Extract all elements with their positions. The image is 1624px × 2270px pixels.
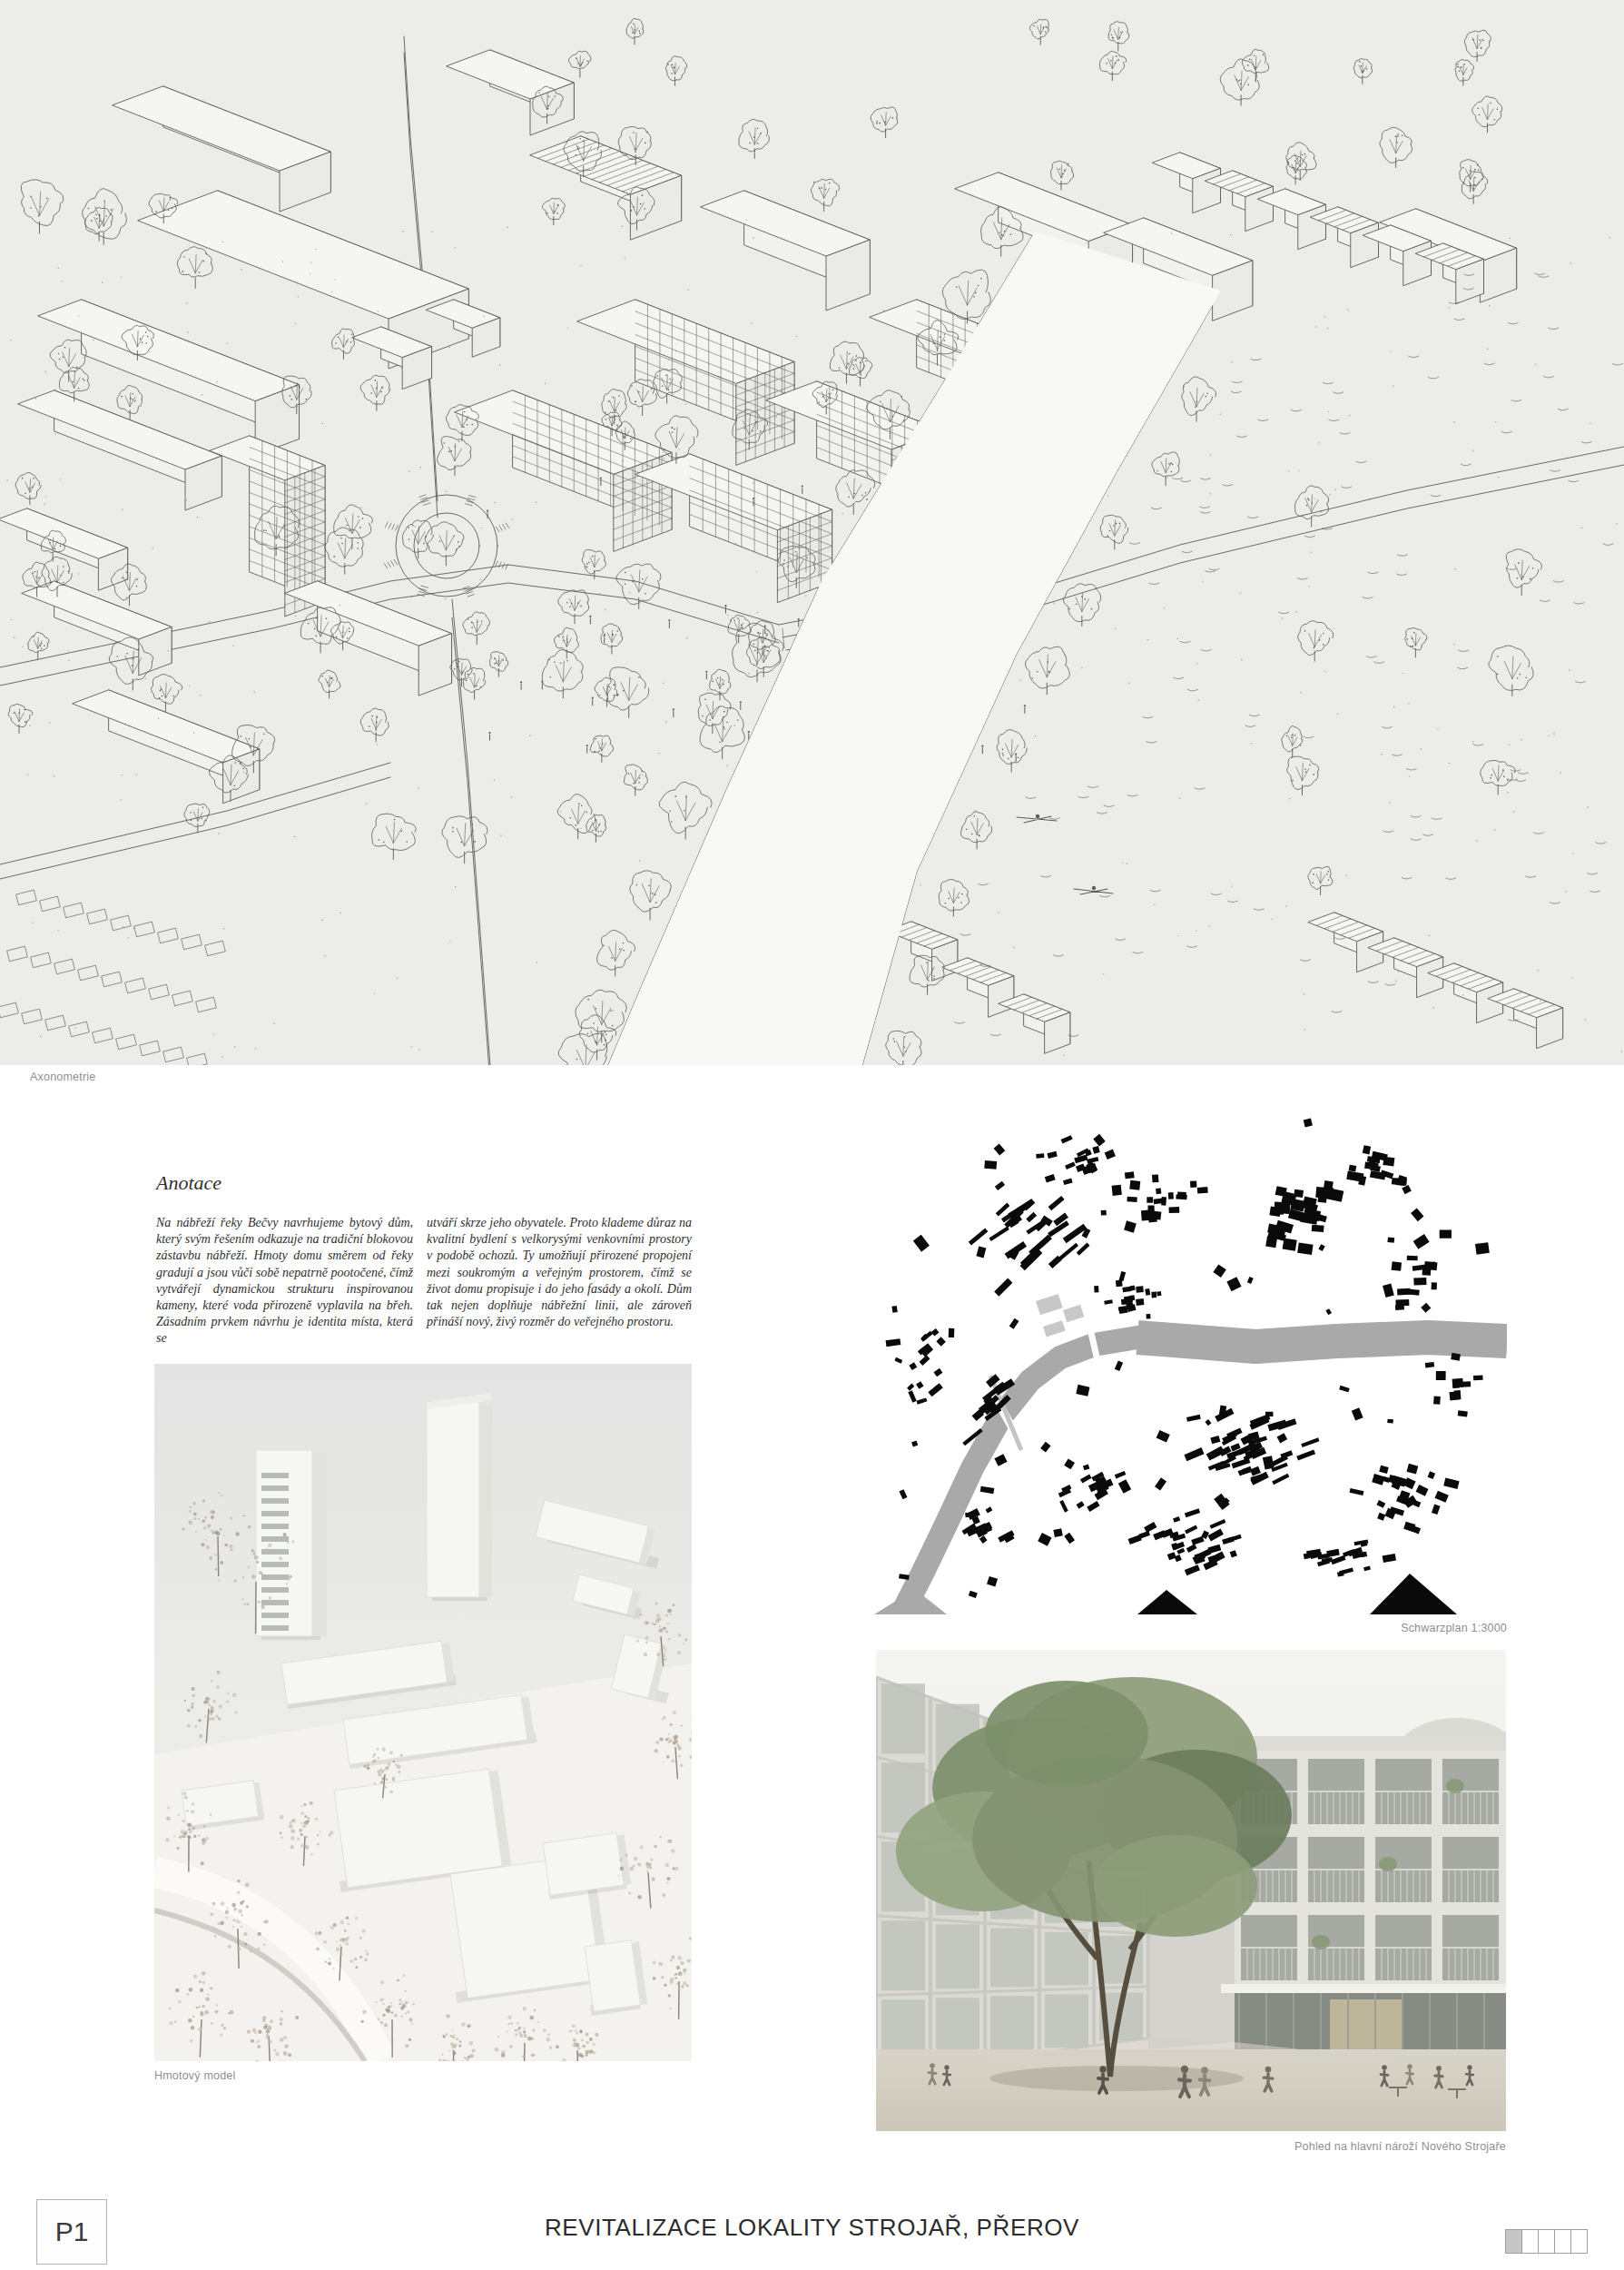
- panel-id-badge: P1: [36, 2199, 107, 2265]
- page-indicator-cell: [1521, 2229, 1539, 2254]
- page-indicator-cell: [1505, 2229, 1522, 2254]
- annotation-column-1: Na nábřeží řeky Bečvy navrhujeme bytový …: [156, 1215, 413, 1347]
- annotation-heading: Anotace: [156, 1171, 221, 1195]
- page-indicator-cell: [1538, 2229, 1555, 2254]
- annotation-column-2: utváří skrze jeho obyvatele. Proto klade…: [427, 1215, 692, 1330]
- axonometric-drawing: [0, 0, 1624, 1065]
- panel-title: REVITALIZACE LOKALITY STROJAŘ, PŘEROV: [545, 2214, 1079, 2242]
- caption-schwarzplan: Schwarzplan 1:3000: [865, 1622, 1507, 1634]
- caption-axonometrie: Axonometrie: [30, 1071, 95, 1083]
- render-photo-svg: [876, 1650, 1506, 2131]
- page-indicator: [1506, 2229, 1588, 2254]
- page-indicator-cell: [1554, 2229, 1571, 2254]
- figure-ground-map: [865, 1103, 1507, 1614]
- render-photo: [876, 1650, 1506, 2131]
- axonometric-drawing-svg: [0, 0, 1624, 1065]
- panel-id-label: P1: [55, 2216, 89, 2247]
- caption-render: Pohled na hlavní nároží Nového Strojaře: [876, 2140, 1506, 2153]
- page-indicator-cell: [1570, 2229, 1588, 2254]
- model-photo: [154, 1364, 692, 2061]
- caption-model: Hmotový model: [154, 2069, 235, 2082]
- model-photo-svg: [154, 1364, 692, 2061]
- figure-ground-map-svg: [865, 1103, 1507, 1614]
- competition-panel: Axonometrie Anotace Na nábřeží řeky Bečv…: [0, 0, 1624, 2270]
